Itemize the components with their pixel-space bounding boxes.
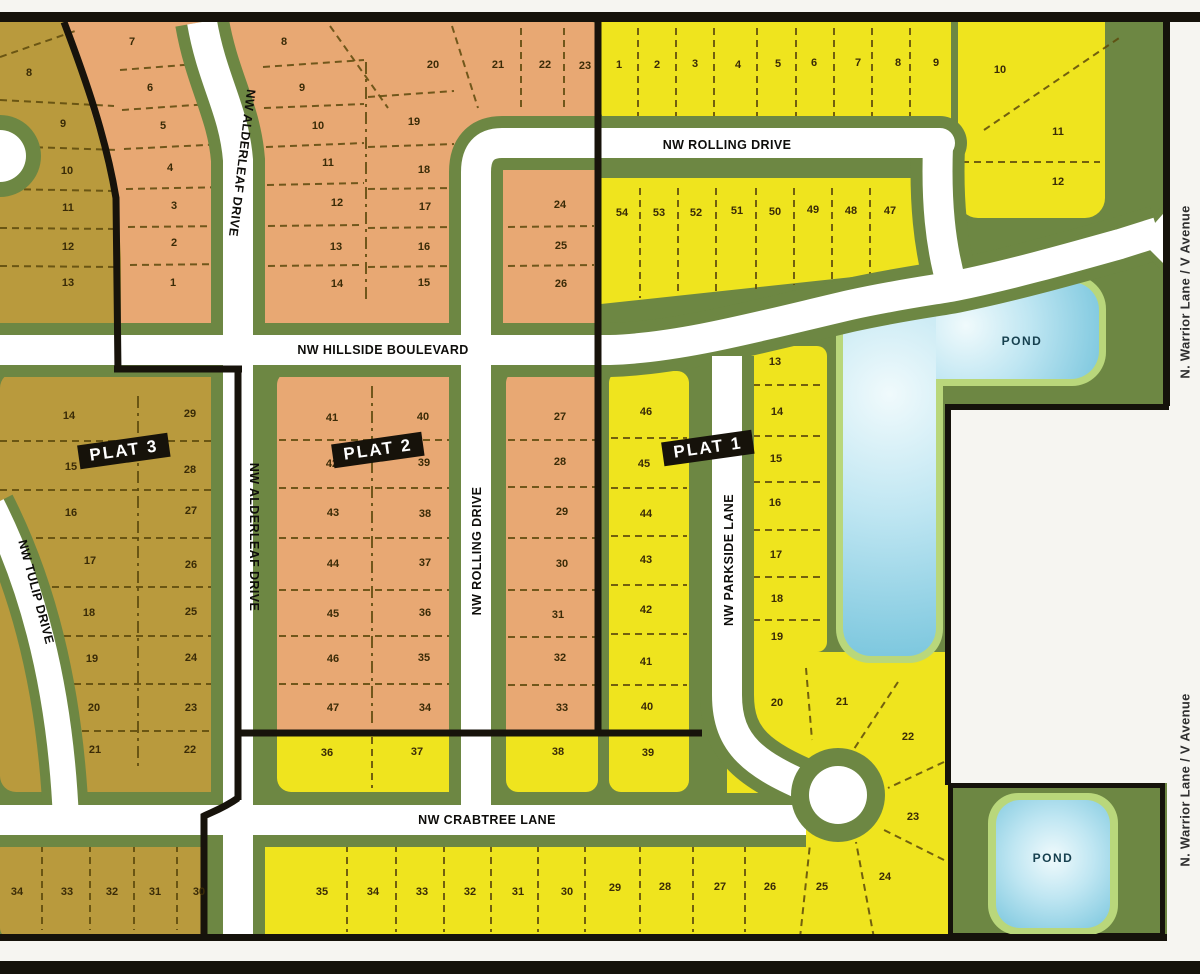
lot-plat1-43: 43 (640, 554, 652, 566)
lot-plat2-north-20: 20 (427, 59, 439, 71)
lot-plat2-west-5: 5 (160, 120, 166, 132)
lot-plat2-west-2: 2 (171, 237, 177, 249)
lot-plat3-south-34: 34 (11, 886, 23, 898)
lot-plat2-north-18: 18 (418, 164, 430, 176)
lot-plat1-22: 22 (902, 731, 914, 743)
lot-plat1-north-53: 53 (653, 207, 665, 219)
lot-plat3-north-13: 13 (62, 277, 74, 289)
lot-plat2-40: 40 (417, 411, 429, 423)
pond-label: POND (1033, 851, 1074, 865)
lot-plat2-35: 35 (418, 652, 430, 664)
lot-plat1-crabtree-37: 37 (411, 746, 423, 758)
lot-plat3-18: 18 (83, 607, 95, 619)
map-border-bottom-bar (0, 961, 1200, 974)
lot-plat1-south-30: 30 (561, 886, 573, 898)
lot-plat2-west-3: 3 (171, 200, 177, 212)
lot-plat1-north-10: 10 (994, 64, 1006, 76)
lot-plat1-crabtree-38: 38 (552, 746, 564, 758)
lot-plat2-north-15: 15 (418, 277, 430, 289)
road-casings (0, 22, 1170, 938)
lot-plat1-south-25: 25 (816, 881, 828, 893)
lot-plat1-16: 16 (769, 497, 781, 509)
lot-plat2-41: 41 (326, 412, 338, 424)
lot-plat2-north-13: 13 (330, 241, 342, 253)
lot-plat3-24: 24 (185, 652, 197, 664)
lot-divider-line (508, 265, 594, 266)
lot-divider-line (264, 104, 364, 108)
lot-plat2-30: 30 (556, 558, 568, 570)
lot-divider-line (852, 682, 898, 752)
lot-plat2-north-16: 16 (418, 241, 430, 253)
lot-plat3-20: 20 (88, 702, 100, 714)
lot-plat2-north-11: 11 (322, 157, 334, 169)
lot-plat2-west-6: 6 (147, 82, 153, 94)
lot-plat3-south-31: 31 (149, 886, 161, 898)
lot-plat1-north-54: 54 (616, 207, 628, 219)
lot-plat2-28: 28 (554, 456, 566, 468)
lot-plat1-south-28: 28 (659, 881, 671, 893)
lot-plat1-north-6: 6 (811, 57, 817, 69)
lot-plat2-west-4: 4 (167, 162, 173, 174)
street-label-nw-rolling-drive: NW ROLLING DRIVE (663, 138, 792, 152)
lot-plat3-29: 29 (184, 408, 196, 420)
lot-plat3-23: 23 (185, 702, 197, 714)
lot-plat3-17: 17 (84, 555, 96, 567)
pond-label: POND (1002, 334, 1043, 348)
lot-plat1-north-2: 2 (654, 59, 660, 71)
lot-plat2-43: 43 (327, 507, 339, 519)
lot-plat1-20: 20 (771, 697, 783, 709)
lot-plat1-44: 44 (640, 508, 652, 520)
street-label-n-warrior-lane-v-avenue: N. Warrior Lane / V Avenue (1178, 205, 1193, 378)
street-label-nw-alderleaf-drive: NW ALDERLEAF DRIVE (247, 463, 261, 611)
lot-divider-line (368, 188, 454, 189)
lot-plat2-31: 31 (552, 609, 564, 621)
lot-plat2-36: 36 (419, 607, 431, 619)
street-label-nw-parkside-lane: NW PARKSIDE LANE (722, 494, 736, 626)
lot-plat1-north-9: 9 (933, 57, 939, 69)
lot-plat1-40: 40 (641, 701, 653, 713)
lot-plat2-north-9: 9 (299, 82, 305, 94)
lot-plat2-27: 27 (554, 411, 566, 423)
road-network (0, 0, 1200, 974)
lot-plat1-north-3: 3 (692, 58, 698, 70)
lot-plat2-47: 47 (327, 702, 339, 714)
street-label-nw-hillside-boulevard: NW HILLSIDE BOULEVARD (297, 343, 468, 357)
lot-plat2-north-21: 21 (492, 59, 504, 71)
lot-plat1-21: 21 (836, 696, 848, 708)
lot-plat1-46: 46 (640, 406, 652, 418)
lot-plat1-north-12: 12 (1052, 176, 1064, 188)
lot-divider-line (368, 266, 454, 267)
lot-plat3-14: 14 (63, 410, 75, 422)
lot-plat1-south-32: 32 (464, 886, 476, 898)
lot-plat2-north-12: 12 (331, 197, 343, 209)
lot-plat3-south-32: 32 (106, 886, 118, 898)
lot-plat2-33: 33 (556, 702, 568, 714)
lot-plat1-15: 15 (770, 453, 782, 465)
lot-plat2-north-8: 8 (281, 36, 287, 48)
lot-plat2-north-23: 23 (579, 60, 591, 72)
lot-divider-line (452, 26, 478, 108)
lot-plat1-south-26: 26 (764, 881, 776, 893)
lot-plat2-north-26: 26 (555, 278, 567, 290)
lot-plat3-north-11: 11 (62, 202, 74, 214)
lot-divider-line (330, 26, 388, 108)
lot-divider-line (267, 183, 364, 185)
lot-plat3-north-8: 8 (26, 67, 32, 79)
map-border-bottom (0, 934, 1167, 941)
lot-divider-line (800, 844, 810, 938)
lot-plat1-south-33: 33 (416, 886, 428, 898)
lot-plat1-north-49: 49 (807, 204, 819, 216)
lot-plat2-29: 29 (556, 506, 568, 518)
lot-plat1-south-35: 35 (316, 886, 328, 898)
lot-plat2-north-22: 22 (539, 59, 551, 71)
street-label-nw-crabtree-lane: NW CRABTREE LANE (418, 813, 556, 827)
lot-plat1-south-31: 31 (512, 886, 524, 898)
lot-plat3-south-33: 33 (61, 886, 73, 898)
lot-plat2-north-17: 17 (419, 201, 431, 213)
lot-divider-line (508, 226, 594, 227)
notch-border-top (945, 404, 1169, 410)
lot-plat3-22: 22 (184, 744, 196, 756)
map-border-top-bar (0, 12, 1200, 22)
lot-plat3-26: 26 (185, 559, 197, 571)
lot-plat2-37: 37 (419, 557, 431, 569)
lot-plat1-north-52: 52 (690, 207, 702, 219)
lot-plat1-north-8: 8 (895, 57, 901, 69)
lot-plat1-41: 41 (640, 656, 652, 668)
street-label-nw-rolling-drive: NW ROLLING DRIVE (470, 487, 484, 616)
lot-divider-line (888, 762, 944, 788)
lot-divider-line (368, 91, 454, 97)
lot-plat2-north-24: 24 (554, 199, 566, 211)
lot-divider-line (884, 830, 944, 860)
lot-plat1-north-5: 5 (775, 58, 781, 70)
lot-divider-line (266, 143, 364, 147)
lot-plat1-17: 17 (770, 549, 782, 561)
lot-plat1-north-1: 1 (616, 59, 622, 71)
lot-plat2-44: 44 (327, 558, 339, 570)
lot-plat2-32: 32 (554, 652, 566, 664)
lot-plat1-north-51: 51 (731, 205, 743, 217)
lot-plat1-north-48: 48 (845, 205, 857, 217)
lot-plat1-19: 19 (771, 631, 783, 643)
lot-plat1-39: 39 (642, 747, 654, 759)
lot-plat1-18: 18 (771, 593, 783, 605)
lot-plat3-28: 28 (184, 464, 196, 476)
lot-plat2-46: 46 (327, 653, 339, 665)
lot-plat1-13: 13 (769, 356, 781, 368)
lot-plat1-45: 45 (638, 458, 650, 470)
lot-plat1-north-50: 50 (769, 206, 781, 218)
lot-plat3-north-12: 12 (62, 241, 74, 253)
lot-plat3-16: 16 (65, 507, 77, 519)
lot-plat3-north-9: 9 (60, 118, 66, 130)
lot-divider-line (263, 60, 364, 67)
lot-divider-line (268, 225, 364, 226)
lot-plat2-34: 34 (419, 702, 431, 714)
lot-divider-line (806, 668, 812, 740)
lot-plat3-north-10: 10 (61, 165, 73, 177)
lot-plat3-25: 25 (185, 606, 197, 618)
lot-plat3-27: 27 (185, 505, 197, 517)
lot-plat1-north-7: 7 (855, 57, 861, 69)
lot-divider-line (0, 100, 114, 106)
street-label-n-warrior-lane-v-avenue: N. Warrior Lane / V Avenue (1178, 693, 1193, 866)
notch-border-left (945, 404, 951, 785)
lot-plat2-north-10: 10 (312, 120, 324, 132)
plat-map: 8910111213765432189101112131420191817161… (0, 0, 1200, 974)
map-border-right (1163, 22, 1170, 406)
lot-plat2-39: 39 (418, 457, 430, 469)
lot-plat3-21: 21 (89, 744, 101, 756)
lot-plat1-north-4: 4 (735, 59, 741, 71)
lot-plat2-west-7: 7 (129, 36, 135, 48)
lot-plat1-south-27: 27 (714, 881, 726, 893)
lot-plat1-42: 42 (640, 604, 652, 616)
lot-divider-line (368, 227, 454, 228)
lot-plat2-north-19: 19 (408, 116, 420, 128)
lot-plat2-north-14: 14 (331, 278, 343, 290)
lot-plat1-south-34: 34 (367, 886, 379, 898)
lot-divider-line (268, 265, 364, 266)
lot-plat2-38: 38 (419, 508, 431, 520)
lot-plat1-north-11: 11 (1052, 126, 1064, 138)
lot-plat3-15: 15 (65, 461, 77, 473)
lot-plat1-south-29: 29 (609, 882, 621, 894)
lot-divider-line (0, 266, 118, 267)
lot-divider-line (984, 36, 1122, 130)
lot-plat1-23: 23 (907, 811, 919, 823)
lot-divider-line (0, 228, 118, 229)
lot-divider-line (856, 842, 874, 938)
lot-plat2-north-25: 25 (555, 240, 567, 252)
lot-divider-line (368, 144, 454, 147)
lot-plat2-45: 45 (327, 608, 339, 620)
lot-plat3-19: 19 (86, 653, 98, 665)
lot-plat3-south-30: 30 (193, 886, 205, 898)
lot-plat2-west-1: 1 (170, 277, 176, 289)
lot-plat1-14: 14 (771, 406, 783, 418)
lot-plat1-crabtree-36: 36 (321, 747, 333, 759)
lot-plat1-24: 24 (879, 871, 891, 883)
lot-plat1-north-47: 47 (884, 205, 896, 217)
